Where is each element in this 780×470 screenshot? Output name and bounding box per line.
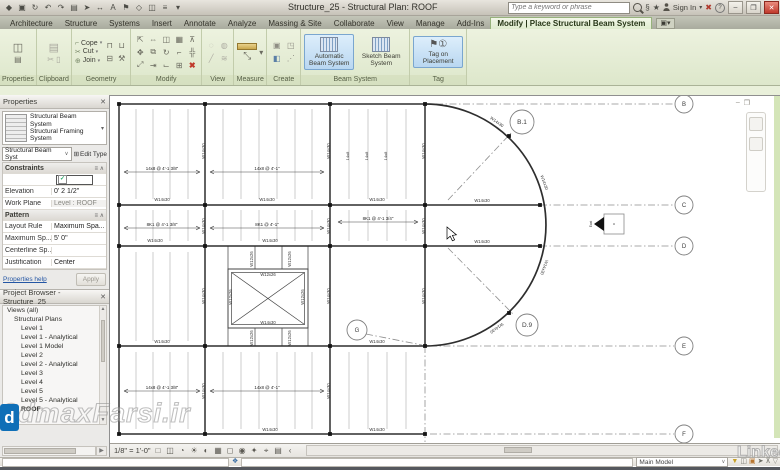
tab-annotate[interactable]: Annotate [178, 18, 222, 29]
beam-label: W14x30 [489, 322, 505, 335]
grid-bubble-label: D [682, 244, 687, 250]
beam-node [423, 244, 427, 248]
modify-tools: ⇱⇔ ◫▦ ⊼ ✥⧉ ↻⌐ ╬ ⤢⇥ ⌙⊞ ✖ [134, 33, 198, 71]
beam-label: W14x30 [326, 288, 331, 304]
tab-architecture[interactable]: Architecture [4, 18, 59, 29]
beam-node [538, 203, 542, 207]
tab-structure[interactable]: Structure [59, 18, 103, 29]
beam-node [538, 244, 542, 248]
beam-label: W12x26 [228, 289, 233, 305]
grid-bubble-label: B.1 [517, 119, 527, 126]
shadows-icon[interactable]: ◐ [201, 445, 212, 456]
drawing-area[interactable]: 14x8 @ 4'-1 3/8"14x8 @ 4'-1"8K1 @ 4'-1 3… [110, 95, 780, 444]
temporary-hide-icon[interactable]: ◻ [225, 445, 236, 456]
svg-text:14x8 @ 4'-1 3/8": 14x8 @ 4'-1 3/8" [146, 166, 179, 171]
scroll-down-icon[interactable]: ▼ [100, 417, 106, 424]
delete-icon[interactable]: ✖ [189, 61, 196, 70]
thin-lines-icon[interactable]: ≡ [159, 2, 171, 13]
beam-label: W12x26 [287, 330, 292, 346]
browser-item-level-5-analytical[interactable]: Level 5 - Analytical [3, 396, 106, 405]
parts-icon[interactable]: ◧ [273, 54, 281, 63]
constraints-icon[interactable]: ⌖ [261, 445, 272, 456]
linework-icon[interactable]: ╱ [209, 54, 214, 63]
beam-label: W14x30 [369, 197, 385, 202]
beam-node [203, 344, 207, 348]
steering-wheel-icon[interactable] [749, 117, 763, 131]
beam-label: W14x30 [474, 239, 490, 244]
property-row-layout-rule[interactable]: Layout RuleMaximum Spa... [3, 221, 106, 233]
trim-icon[interactable]: ⌐ [177, 48, 182, 57]
beam-label: 14x8 [364, 151, 369, 160]
status-bar: ❖ Main Model∨ ▼◫▣➤⊼▽ [0, 457, 780, 466]
beam-node [328, 432, 332, 436]
move-icon[interactable]: ✥ [137, 48, 144, 57]
browser-item-level-2-analytical[interactable]: Level 2 - Analytical [3, 360, 106, 369]
beam-label: W14x30 [201, 383, 206, 399]
elevation-label: East [589, 221, 593, 227]
beam-label: W14x30 [369, 339, 385, 344]
browser-item-level-1[interactable]: Level 1 [3, 324, 106, 333]
corner-icon[interactable]: ⌙ [163, 61, 170, 70]
search-input[interactable] [508, 2, 630, 14]
redo-icon[interactable]: ↷ [55, 2, 67, 13]
beam-label: W14x30 [421, 143, 426, 159]
worksharing-display-icon[interactable]: ✦ [249, 445, 260, 456]
measure-icon[interactable]: ↔ [94, 2, 106, 13]
beam-node [203, 432, 207, 436]
view-window-controls[interactable]: – ❐ [736, 99, 750, 107]
ribbon-tab-bar: ArchitectureStructureSystemsInsertAnnota… [0, 16, 780, 29]
beam-system-icon [320, 37, 338, 52]
help-icon[interactable]: ? [715, 3, 725, 13]
panel-measure: ⤡ ▾ Measure [234, 29, 267, 85]
beam-node [328, 203, 332, 207]
beam-system-tag: 14x8 @ 4'-1 3/8" [124, 385, 200, 393]
tab-view[interactable]: View [381, 18, 410, 29]
pin-icon[interactable]: ⊼ [189, 35, 195, 44]
panel-label-view[interactable]: View [202, 75, 233, 85]
tab-massing-site[interactable]: Massing & Site [262, 18, 327, 29]
beam-label: W12x26 [287, 251, 292, 267]
beam-node [328, 244, 332, 248]
panel-geometry: ⌐Cope ▾✂Cut ▾⊕Join ▾ ⊓⊔ ⊟⚒ Geometry [72, 29, 131, 85]
worksets-icon[interactable]: ▼ [731, 458, 738, 466]
property-row-centerline-sp[interactable]: Centerline Sp... [3, 245, 106, 257]
panel-properties: ◫ ▤ Properties [0, 29, 37, 85]
panel-label-beam-system[interactable]: Beam System [301, 75, 409, 85]
visual-style-icon[interactable]: □ [153, 445, 164, 456]
svg-text:14x8 @ 4'-1": 14x8 @ 4'-1" [254, 385, 280, 390]
tab-manage[interactable]: Manage [410, 18, 451, 29]
left-panel: Properties ✕ Structural Beam System Stru… [0, 95, 110, 443]
type-thumbnail [5, 114, 27, 142]
sun-path-icon[interactable]: ☀ [189, 445, 200, 456]
press-drag-icon[interactable]: ➤ [758, 458, 764, 466]
panel-label-properties[interactable]: Properties [0, 75, 36, 85]
browser-item-structural-plans[interactable]: Structural Plans [3, 315, 106, 324]
beam-node [328, 102, 332, 106]
view-scale-label[interactable]: 1/8" = 1'-0" [114, 446, 151, 455]
cut-icon: ✂ [75, 48, 81, 56]
hide-icon[interactable]: ◌ [209, 41, 214, 50]
print-icon[interactable]: ▤ [68, 2, 80, 13]
tab-collaborate[interactable]: Collaborate [328, 18, 381, 29]
beam-node [328, 344, 332, 348]
rendering-icon[interactable]: ▦ [213, 445, 224, 456]
offset-icon[interactable]: ⇔ [149, 35, 157, 44]
group-icon[interactable]: ▣ [273, 41, 281, 50]
editable-only-icon[interactable]: ▣ [749, 458, 756, 466]
grid-bubble-label: F [682, 432, 686, 438]
watermark-logo: d [0, 404, 19, 431]
cut-button[interactable]: ✂Cut ▾ [75, 48, 102, 56]
join-icon: ⊕ [75, 57, 81, 65]
structural-plan-canvas[interactable]: 14x8 @ 4'-1 3/8"14x8 @ 4'-1"8K1 @ 4'-1 3… [110, 96, 780, 444]
align-icon[interactable]: ⇱ [137, 35, 144, 44]
beam-system-tag: 8K1 @ 4'-1" [210, 222, 324, 230]
panel-label-modify[interactable]: Modify [131, 75, 201, 85]
status-prompt-field [2, 458, 229, 467]
info-center: § ★ Sign In ▾ ✖ ? – ❐ ✕ [508, 1, 779, 14]
beam-node [203, 102, 207, 106]
beam-node [117, 244, 121, 248]
section-constraints[interactable]: Constraints≡ ∧ [3, 163, 106, 174]
elevation-arrow [594, 217, 604, 231]
property-row-work-plane[interactable]: Work PlaneLevel : ROOF [3, 198, 106, 210]
beam-label: W14x30 [201, 218, 206, 234]
hscroll-track[interactable] [2, 446, 96, 456]
beam-node [117, 203, 121, 207]
override-icon[interactable]: ◍ [221, 41, 228, 50]
view-control-icons: □◫◔☀◐▦◻◉✦⌖▤‹ [153, 445, 296, 456]
property-row-maximum-sp[interactable]: Maximum Sp...5' 0" [3, 233, 106, 245]
beam-label: 14x8 [383, 151, 388, 160]
grid-bubble-label: E [682, 344, 686, 350]
grid-line [448, 248, 514, 315]
close-button[interactable]: ✕ [764, 1, 779, 14]
join-cut-icon[interactable]: ⊞ [176, 61, 183, 70]
restore-button[interactable]: ❐ [746, 1, 761, 14]
analytical-model-icon[interactable]: ▤ [273, 445, 284, 456]
project-browser-header[interactable]: Project Browser - Structure_25 ✕ [0, 290, 109, 304]
status-secondary-field [241, 458, 633, 467]
canvas-hscrollbar[interactable] [306, 445, 778, 456]
beam-system-icon [372, 37, 390, 52]
beam-label: W12x26 [249, 251, 254, 267]
copy-icon[interactable]: ⧉ [150, 47, 156, 57]
browser-scrollbar[interactable]: ▲ ▼ [99, 306, 106, 424]
unjoin-icon[interactable]: ⊟ [106, 54, 113, 63]
beam-node [507, 311, 511, 315]
tree-items: Views (all)Structural PlansLevel 1Level … [3, 306, 106, 414]
beam-node [423, 102, 427, 106]
beam-label: W14x30 [147, 238, 163, 243]
browser-item-level-1-model[interactable]: Level 1 Model [3, 342, 106, 351]
property-row-justification[interactable]: JustificationCenter [3, 257, 106, 269]
edit-type-button[interactable]: ⊞ Edit Type [74, 150, 107, 158]
panel-modify: ⇱⇔ ◫▦ ⊼ ✥⧉ ↻⌐ ╬ ⤢⇥ ⌙⊞ ✖ Modify [131, 29, 202, 85]
hscroll-thumb[interactable] [4, 448, 76, 454]
quick-access-toolbar: ◆▣↻↶↷▤➤↔A⚑◇◫≡▾ [0, 2, 184, 13]
sketch-beam-system-button[interactable]: Sketch Beam System [356, 34, 406, 70]
mirror-icon[interactable]: ◫ [162, 35, 170, 44]
beam-node [117, 102, 121, 106]
text-icon[interactable]: A [107, 2, 119, 13]
beam-system-tag: 14x8 @ 4'-1 3/8" [124, 166, 200, 174]
split-icon[interactable]: ╬ [189, 48, 195, 57]
edit-type-icon: ⊞ [74, 150, 79, 158]
apply-button[interactable]: Apply [76, 273, 106, 286]
type-selector-arrow-icon[interactable]: ▾ [101, 125, 106, 132]
properties-icon[interactable]: ◫ [13, 41, 23, 54]
beam-label: W12x26 [249, 330, 254, 346]
bottom-bar: ▶ 1/8" = 1'-0" □◫◔☀◐▦◻◉✦⌖▤‹ [0, 443, 780, 457]
properties-palette-header[interactable]: Properties ✕ [0, 95, 109, 109]
subscription-icon[interactable]: § [645, 3, 649, 12]
type-name: Structural Beam System Structural Framin… [29, 112, 101, 144]
beam-join-icon[interactable]: ⊓ [107, 41, 113, 50]
edge-artifact [774, 96, 780, 438]
type-selector[interactable]: Structural Beam System Structural Framin… [2, 111, 107, 145]
svg-text:14x8 @ 4'-1 3/8": 14x8 @ 4'-1 3/8" [146, 385, 179, 390]
view-control-bar: 1/8" = 1'-0" □◫◔☀◐▦◻◉✦⌖▤‹ [110, 443, 780, 457]
cope-icon: ⌐ [75, 40, 79, 47]
crop-region-icon[interactable]: ◔ [177, 445, 188, 456]
more-icon[interactable]: ‹ [285, 445, 296, 456]
beam-label: W14x30 [260, 320, 276, 325]
beam-system-tag: 8K1 @ 4'-1 3/8" [124, 222, 200, 230]
property-row-elevation[interactable]: Elevation0' 2 1/2" [3, 186, 106, 198]
beam-label: W14x30 [326, 143, 331, 159]
beam-node [117, 344, 121, 348]
beam-label: W14x30 [201, 288, 206, 304]
join-button[interactable]: ⊕Join ▾ [75, 57, 102, 65]
properties-title: Properties [3, 97, 37, 106]
exclude-options-icon[interactable]: ⊼ [765, 458, 770, 466]
extend-icon[interactable]: ⇥ [150, 61, 157, 70]
ribbon: ◫ ▤ Properties ▤ ✂ ▯ Clipboard ⌐Cope ▾✂C… [0, 29, 780, 86]
assembly-icon[interactable]: ◳ [287, 41, 295, 50]
browser-item-views-all[interactable]: Views (all) [3, 306, 106, 315]
beam-label: W14x30 [201, 143, 206, 159]
type-dropdown[interactable]: Structural Beam Syst∨ [2, 147, 72, 161]
beam-system-buttons: Automatic Beam SystemSketch Beam System [301, 29, 409, 75]
window-title: Structure_25 - Structural Plan: ROOF [288, 2, 438, 12]
beam-node [423, 344, 427, 348]
family-env-icon[interactable]: ❖ [232, 458, 238, 466]
canvas-hscroll-thumb[interactable] [504, 447, 532, 453]
array-icon[interactable]: ▦ [175, 35, 183, 44]
panel-label-tag[interactable]: Tag [410, 75, 466, 85]
ruler-icon[interactable] [237, 43, 257, 50]
section-pattern[interactable]: Pattern≡ ∧ [3, 210, 106, 221]
browser-item-level-1-analytical[interactable]: Level 1 - Analytical [3, 333, 106, 342]
beam-label: W14x30 [369, 427, 385, 432]
panel-label-measure[interactable]: Measure [234, 75, 266, 85]
beam-label: W14x30 [262, 427, 278, 432]
minimize-button[interactable]: – [728, 1, 743, 14]
beam-label: W14x30 [489, 115, 505, 128]
beam-label: W12x26 [260, 272, 276, 277]
properties-grid: Constraints≡ ∧✓Elevation0' 2 1/2"Work Pl… [2, 162, 107, 270]
view-minimize-icon[interactable]: – [736, 99, 740, 107]
title-bar: ◆▣↻↶↷▤➤↔A⚑◇◫≡▾ Structure_25 - Structural… [0, 0, 780, 16]
zoom-tool-icon[interactable] [749, 137, 763, 151]
beam-label: W14x30 [326, 218, 331, 234]
displace-icon[interactable]: ≋ [221, 54, 228, 63]
grid-line [448, 132, 512, 200]
view-restore-icon[interactable]: ❐ [744, 99, 750, 107]
user-icon[interactable] [663, 3, 670, 13]
tab-analyze[interactable]: Analyze [222, 18, 262, 29]
measure-icon[interactable]: ⤡ [243, 51, 251, 62]
project-browser-close-icon[interactable]: ✕ [100, 293, 106, 301]
svg-text:8K1 @ 4'-1 3/8": 8K1 @ 4'-1 3/8" [147, 222, 178, 227]
beam-node [423, 203, 427, 207]
search-icon[interactable] [633, 3, 642, 12]
beam-label: 14x8 [345, 151, 350, 160]
beam-label: W14x30 [421, 218, 426, 234]
revit-app-icon[interactable]: ◆ [3, 2, 15, 13]
tag-icon: ⚑① [429, 39, 447, 50]
qat-customize-icon[interactable]: ▾ [172, 2, 184, 13]
scroll-up-icon[interactable]: ▲ [100, 306, 106, 313]
panel-create: ▣◳ ◧⋰ Create [267, 29, 301, 85]
svg-text:8K1 @ 4'-1 3/4": 8K1 @ 4'-1 3/4" [363, 216, 394, 221]
similar-icon[interactable]: ⋰ [287, 54, 295, 63]
modify-arrow-icon[interactable]: ➤ [81, 2, 93, 13]
rotate-icon[interactable]: ↻ [163, 48, 170, 57]
beam-label: W14x30 [154, 339, 170, 344]
status-icons: ▼◫▣➤⊼▽ [731, 458, 778, 466]
panel-beam-system: Automatic Beam SystemSketch Beam System … [301, 29, 410, 85]
project-browser-title: Project Browser - Structure_25 [3, 288, 100, 306]
beam-label: W14x30 [474, 198, 490, 203]
save-icon[interactable]: ▣ [16, 2, 28, 13]
properties-help-link[interactable]: Properties help [3, 276, 47, 283]
scroll-thumb[interactable] [101, 320, 105, 362]
beam-system-tag: 14x8 @ 4'-1" [210, 166, 324, 174]
navigation-bar[interactable] [746, 112, 766, 192]
beam-label: W14x30 [421, 288, 426, 304]
scale-icon[interactable]: ⤢ [137, 60, 143, 70]
tab-contextual-modify[interactable]: Modify | Place Structural Beam System [490, 17, 652, 29]
beam-node [423, 432, 427, 436]
section-icon[interactable]: ◫ [146, 2, 158, 13]
design-options-dropdown[interactable]: Main Model∨ [636, 457, 728, 467]
property-row-checkbox[interactable]: ✓ [3, 174, 106, 186]
panel-label-create[interactable]: Create [267, 75, 300, 85]
beam-label: W14x30 [326, 383, 331, 399]
mouse-cursor [447, 227, 456, 241]
curved-beam [425, 104, 546, 346]
beam-system-tag: 14x8 @ 4'-1" [210, 385, 324, 393]
favorites-star-icon[interactable]: ★ [653, 3, 660, 12]
grid-bubble-label: G [355, 328, 360, 334]
tab-add-ins[interactable]: Add-Ins [451, 18, 491, 29]
beam-node [117, 432, 121, 436]
beam-node [203, 244, 207, 248]
contextual-tab-dropdown-icon[interactable]: ▣▾ [656, 18, 674, 29]
view-3d-icon[interactable]: ◇ [133, 2, 145, 13]
cope-button[interactable]: ⌐Cope ▾ [75, 40, 102, 47]
beam-label: W14x30 [262, 238, 278, 243]
signin-dropdown-icon[interactable]: ▾ [699, 4, 702, 11]
automatic-beam-system-button[interactable]: Automatic Beam System [304, 34, 354, 70]
beam-node [203, 203, 207, 207]
exchange-apps-icon[interactable]: ✖ [705, 3, 712, 12]
browser-item-level-2[interactable]: Level 2 [3, 351, 106, 360]
wall-join-icon[interactable]: ⊔ [119, 41, 125, 50]
beam-label: W14x30 [154, 197, 170, 202]
svg-text:14x8 @ 4'-1": 14x8 @ 4'-1" [254, 166, 280, 171]
panel-view: ◌◍ ╱≋ View [202, 29, 234, 85]
sync-icon[interactable]: ↻ [29, 2, 41, 13]
geometry-buttons: ⌐Cope ▾✂Cut ▾⊕Join ▾ [75, 40, 102, 65]
demolish-icon[interactable]: ⚒ [118, 54, 125, 63]
sign-in-label[interactable]: Sign In [673, 3, 696, 12]
beam-node [507, 134, 511, 138]
panel-tag: ⚑① Tag on Placement Tag [410, 29, 467, 85]
browser-item-level-3[interactable]: Level 3 [3, 369, 106, 378]
measure-dropdown-icon[interactable]: ▾ [259, 48, 263, 57]
browser-item-level-4[interactable]: Level 4 [3, 378, 106, 387]
filter-icon[interactable]: ▽ [773, 458, 778, 466]
grid-bubble-label: C [682, 203, 687, 209]
show-crop-icon[interactable]: ◫ [165, 445, 176, 456]
panel-clipboard: ▤ ✂ ▯ Clipboard [37, 29, 72, 85]
tab-systems[interactable]: Systems [103, 18, 146, 29]
grid-bubble-label: D.9 [522, 322, 533, 329]
beam-label: W14x30 [259, 197, 275, 202]
tag-qat-icon[interactable]: ⚑ [120, 2, 132, 13]
browser-item-level-5[interactable]: Level 5 [3, 387, 106, 396]
elevation-dot [613, 223, 615, 225]
design-options-icon[interactable]: ◫ [740, 458, 747, 466]
properties-close-icon[interactable]: ✕ [100, 98, 106, 106]
properties-sub-icon[interactable]: ▤ [14, 55, 22, 64]
clipboard-sub-icons[interactable]: ✂ ▯ [47, 55, 60, 64]
browser-hscrollbar[interactable]: ▶ [0, 443, 110, 457]
beam-label: W12x26 [300, 289, 305, 305]
hscroll-right-icon[interactable]: ▶ [96, 446, 107, 456]
svg-text:8K1 @ 4'-1": 8K1 @ 4'-1" [255, 222, 279, 227]
tab-insert[interactable]: Insert [146, 18, 178, 29]
paste-icon[interactable]: ▤ [49, 41, 59, 54]
tag-on-placement-button[interactable]: ⚑① Tag on Placement [413, 36, 463, 68]
panel-label-clipboard[interactable]: Clipboard [37, 75, 71, 85]
panel-label-geometry[interactable]: Geometry [72, 75, 130, 85]
undo-icon[interactable]: ↶ [42, 2, 54, 13]
reveal-hidden-icon[interactable]: ◉ [237, 445, 248, 456]
grid-bubble-label: B [682, 102, 686, 108]
